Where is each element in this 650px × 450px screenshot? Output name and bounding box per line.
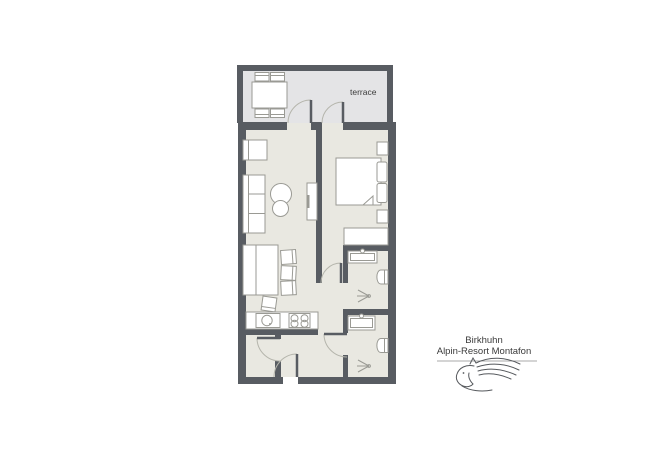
wall-segment (387, 65, 393, 123)
faucet-icon (361, 249, 365, 253)
dining-chair (281, 249, 297, 264)
wall-segment (343, 245, 348, 283)
wall-segment (238, 377, 283, 384)
terrace-dining-table (252, 82, 287, 108)
floor-plan: terrace (0, 0, 650, 450)
terrace-chair (271, 73, 285, 82)
wall-segment (388, 122, 396, 384)
terrace-chair (271, 109, 285, 118)
toilet (377, 339, 388, 353)
dining-chair (261, 296, 277, 312)
kitchen (246, 312, 318, 329)
wall-segment (246, 329, 318, 335)
wall-segment (343, 245, 388, 251)
pillow (377, 162, 387, 182)
terrace-chair (255, 109, 269, 118)
horse-eye (463, 372, 465, 374)
wall-segment (237, 65, 393, 71)
wall-segment (343, 355, 348, 377)
resort-name: Birkhuhn (465, 335, 503, 346)
toilet (377, 270, 388, 284)
nightstand (377, 142, 388, 155)
dresser (344, 228, 388, 245)
terrace-dining-set (252, 73, 287, 118)
resort-subtitle: Alpin-Resort Montafon (437, 346, 532, 357)
coffee-table (273, 201, 289, 217)
tv-icon (308, 195, 310, 208)
wall-segment (343, 309, 388, 315)
sofa (243, 175, 265, 233)
floor-plan-canvas: terrace (0, 0, 650, 450)
faucet-icon (360, 314, 364, 318)
branding: Birkhuhn Alpin-Resort Montafon (437, 335, 537, 391)
wall-segment (311, 122, 322, 130)
terrace: terrace (237, 65, 393, 123)
dining-chair (281, 281, 297, 296)
wall-segment (343, 315, 348, 333)
armchair (243, 140, 267, 160)
dining-chair (281, 266, 297, 281)
terrace-label: terrace (350, 87, 377, 97)
pillow (377, 184, 387, 203)
wall-segment (237, 65, 243, 123)
nightstand (377, 210, 388, 223)
wall-segment (298, 377, 396, 384)
double-bed (336, 158, 381, 205)
horse-logo-icon (456, 358, 520, 391)
terrace-chair (255, 73, 269, 82)
sink-drain (269, 323, 271, 325)
dining-table (256, 245, 278, 295)
dining-bench (243, 245, 256, 295)
